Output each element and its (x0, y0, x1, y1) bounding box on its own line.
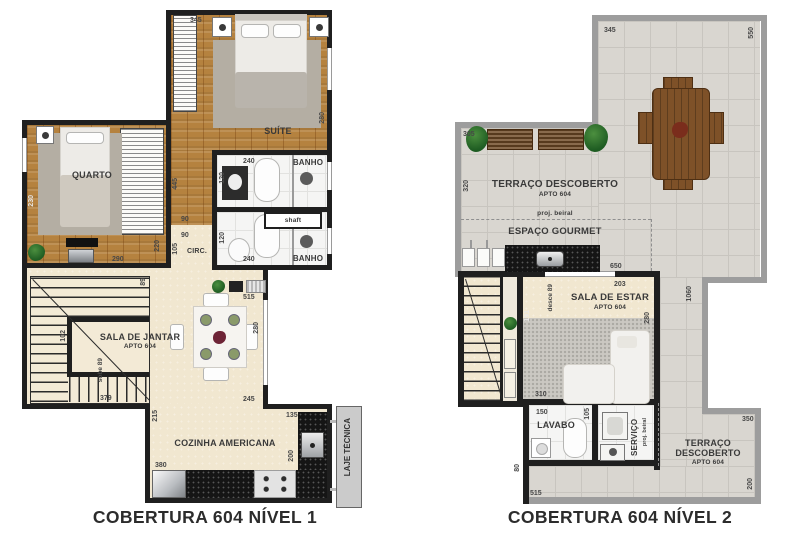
dim: 200 (747, 478, 754, 490)
connector (330, 420, 336, 423)
quarto-label: QUARTO (62, 170, 122, 180)
cabinet (462, 248, 475, 267)
dim: 515 (530, 490, 542, 497)
parapet-wall (455, 122, 461, 277)
dim: 80 (514, 464, 521, 472)
bench (487, 129, 533, 150)
servico-label: SERVIÇO (630, 414, 639, 460)
nightstand-lamp (36, 126, 54, 144)
doormat (246, 280, 266, 293)
wall (212, 150, 327, 155)
counter-leg (470, 240, 472, 248)
pillow (66, 132, 104, 144)
shower-drain (300, 172, 313, 185)
bed-blanket (235, 72, 307, 108)
place-setting (200, 348, 212, 360)
washer-door (609, 448, 617, 456)
kitchen-counter (186, 470, 254, 498)
dim: 280 (253, 322, 260, 334)
dim: 220 (154, 240, 161, 252)
bed-blanket (60, 175, 110, 227)
wall (166, 125, 171, 268)
parapet-wall (702, 277, 708, 414)
bathtub (254, 158, 280, 202)
stair-wall (67, 372, 149, 377)
dim: 350 (742, 416, 754, 423)
dim: 280 (319, 112, 326, 124)
kitchen-counter (296, 470, 327, 498)
dim: sobe 89 (98, 358, 105, 382)
quarto-closet (120, 128, 164, 235)
place-setting (228, 314, 240, 326)
window (327, 48, 332, 90)
plan1-title: COBERTURA 604 NÍVEL 1 (55, 507, 355, 528)
circ-label: CIRC. (183, 248, 211, 256)
banho1-label: BANHO (288, 158, 328, 167)
desk-computer (68, 249, 94, 263)
beiral-line (658, 403, 659, 466)
terraco-sub: APTO 604 (490, 191, 620, 198)
wall (517, 277, 523, 401)
wall (458, 401, 529, 407)
oven-knob (310, 443, 315, 448)
shower-drain (300, 235, 313, 248)
cabinet (477, 248, 490, 267)
dim: 90 (181, 216, 189, 223)
pillow (273, 24, 301, 38)
wall (27, 404, 150, 409)
tank-basin (607, 417, 623, 435)
dim: 240 (243, 256, 255, 263)
dim: 280 (644, 312, 651, 324)
dim: 550 (748, 27, 755, 39)
parapet-wall (592, 15, 598, 128)
dim: 191 (524, 310, 531, 322)
stair-wall (67, 317, 72, 377)
window (22, 138, 27, 172)
sala-estar-label: SALA DE ESTAR (570, 293, 650, 304)
terraco2-label-2: DESCOBERTO (668, 448, 748, 458)
wall (145, 404, 150, 503)
dim: 105 (172, 243, 179, 255)
dim: 245 (243, 396, 255, 403)
floorplan-image: shaft LAJE TÉCNICA SUÍTE QUARTO BANHO BA… (0, 0, 800, 544)
wall (145, 498, 332, 503)
bench (538, 129, 584, 150)
dim: 379 (100, 395, 112, 402)
sala-jantar-label: SALA DE JANTAR (95, 332, 185, 342)
dim: 90 (181, 232, 189, 239)
dim: 102 (60, 330, 67, 342)
desce-label: desce 89 (548, 284, 555, 311)
cozinha-label: COZINHA AMERICANA (165, 438, 285, 448)
dim: 89 (140, 278, 147, 286)
dim: 240 (243, 158, 255, 165)
fridge (152, 470, 186, 498)
gourmet-label: ESPAÇO GOURMET (495, 227, 615, 238)
wall (27, 263, 166, 268)
dim: 515 (243, 294, 255, 301)
beiral-side-label: proj. beiral (643, 418, 649, 446)
dim: 105 (584, 408, 591, 420)
wall (592, 405, 598, 466)
dim: 445 (172, 178, 179, 190)
window (263, 300, 268, 385)
plan2-title: COBERTURA 604 NÍVEL 2 (460, 507, 780, 528)
pillow (241, 24, 269, 38)
sala-estar-sub: APTO 604 (570, 304, 650, 311)
beiral-line (651, 219, 652, 271)
parapet-wall (523, 497, 761, 504)
parapet-wall (708, 408, 761, 414)
wall (268, 404, 332, 409)
chair (203, 293, 229, 307)
counter-leg (486, 240, 488, 248)
laje-tecnica-label: LAJE TÉCNICA (344, 418, 352, 476)
dim: 230 (28, 195, 35, 207)
sala-jantar-sub: APTO 604 (95, 343, 185, 350)
dim: 310 (535, 391, 547, 398)
dim: 150 (536, 409, 548, 416)
decor-item (229, 281, 243, 292)
beiral-line (461, 219, 651, 220)
dim: 305 (463, 131, 475, 138)
dim: 120 (219, 172, 226, 184)
dim: 215 (152, 410, 159, 422)
window (327, 228, 332, 254)
stove (254, 470, 296, 498)
terrace-pavement (529, 466, 702, 497)
parapet-wall (592, 15, 767, 21)
dim: 380 (155, 462, 167, 469)
wall (22, 120, 171, 125)
place-setting (200, 314, 212, 326)
terraco2-sub: APTO 604 (668, 459, 748, 466)
lavabo-label: LAVABO (531, 420, 581, 430)
wall (654, 271, 660, 470)
suite-closet (173, 15, 197, 112)
connector (330, 488, 336, 491)
terraco2-label-1: TERRAÇO (668, 438, 748, 448)
parapet-wall (702, 277, 767, 283)
dim: 650 (610, 263, 622, 270)
dim: 290 (112, 256, 124, 263)
shelf (504, 339, 516, 369)
terraco-label: TERRAÇO DESCOBERTO (490, 179, 620, 191)
dim: 200 (288, 450, 295, 462)
grill (536, 251, 564, 267)
dim: 120 (219, 232, 226, 244)
place-setting (228, 348, 240, 360)
banho2-label: BANHO (288, 254, 328, 263)
dim: 345 (604, 27, 616, 34)
staircase (464, 277, 517, 401)
wall (212, 265, 332, 270)
sofa-pillow (617, 336, 637, 348)
suite-label: SUÍTE (250, 126, 306, 136)
tv (66, 238, 98, 247)
parapet-wall (755, 408, 761, 497)
nightstand-lamp (309, 17, 329, 37)
dim: 320 (463, 180, 470, 192)
cabinet (492, 248, 505, 267)
beiral-label: proj. beiral (520, 210, 590, 217)
stair-wall (67, 317, 149, 322)
sink (228, 174, 242, 190)
chair (203, 367, 229, 381)
dim: 345 (190, 17, 202, 24)
shelf (504, 372, 516, 398)
wall (166, 10, 171, 125)
sofa-chaise (563, 364, 615, 404)
shaft-label: shaft (264, 217, 322, 224)
nightstand-lamp (212, 17, 232, 37)
sink-bowl (536, 443, 548, 455)
wall (523, 401, 529, 504)
dim: 1060 (686, 286, 693, 302)
wall (523, 460, 660, 466)
dim: 135 (286, 412, 298, 419)
dim: 203 (614, 281, 626, 288)
parapet-wall (761, 15, 767, 282)
